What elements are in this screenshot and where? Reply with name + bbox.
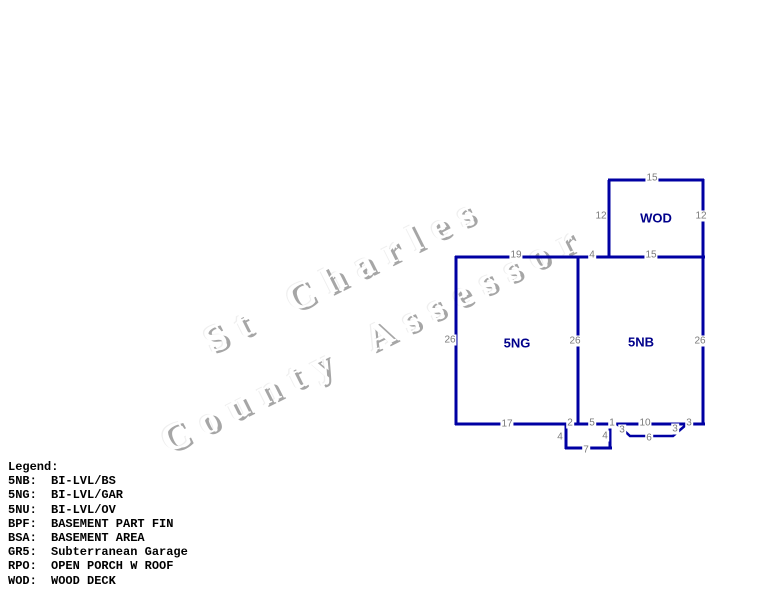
room-label-5ng: 5NG <box>504 336 531 351</box>
dim-wod-right: 12 <box>694 211 707 222</box>
dim-wod-top: 15 <box>645 173 658 184</box>
dim-stoop-bottom-7: 7 <box>582 445 590 456</box>
dim-bottom-17: 17 <box>500 419 513 430</box>
legend-code: 5NG: <box>8 488 51 502</box>
dim-patio-bottom-6: 6 <box>645 433 653 444</box>
legend-code: 5NB: <box>8 474 51 488</box>
dim-top-19: 19 <box>509 250 522 261</box>
legend-desc: WOOD DECK <box>51 574 116 588</box>
legend-code: WOD: <box>8 574 51 588</box>
dim-wod-left: 12 <box>594 211 607 222</box>
room-label-wod: WOD <box>640 211 672 226</box>
legend-desc: BASEMENT AREA <box>51 531 145 545</box>
legend-row: 5NU: BI-LVL/OV <box>8 503 188 517</box>
legend-row: 5NG: BI-LVL/GAR <box>8 488 188 502</box>
dim-mid-26: 26 <box>568 336 581 347</box>
legend-code: 5NU: <box>8 503 51 517</box>
legend-desc: BI-LVL/GAR <box>51 488 123 502</box>
dim-bottom-1: 1 <box>608 418 616 429</box>
legend-code: BPF: <box>8 517 51 531</box>
legend: Legend: 5NB: BI-LVL/BS 5NG: BI-LVL/GAR 5… <box>8 460 188 588</box>
legend-row: 5NB: BI-LVL/BS <box>8 474 188 488</box>
dim-stoop-right-4: 4 <box>601 431 609 442</box>
dim-stoop-left-4: 4 <box>556 432 564 443</box>
legend-desc: OPEN PORCH W ROOF <box>51 559 173 573</box>
dim-patio-left-3: 3 <box>618 425 626 436</box>
dim-right-26: 26 <box>693 336 706 347</box>
legend-row: BPF: BASEMENT PART FIN <box>8 517 188 531</box>
dim-patio-right-3: 3 <box>671 424 679 435</box>
dim-top-4: 4 <box>588 250 596 261</box>
dim-bottom-2: 2 <box>566 418 574 429</box>
dim-bottom-5: 5 <box>588 418 596 429</box>
legend-desc: BI-LVL/OV <box>51 503 116 517</box>
dim-top-15: 15 <box>644 250 657 261</box>
legend-row: BSA: BASEMENT AREA <box>8 531 188 545</box>
legend-row: WOD: WOOD DECK <box>8 574 188 588</box>
dim-left-26: 26 <box>443 335 456 346</box>
dim-bottom-3: 3 <box>685 418 693 429</box>
legend-row: GR5: Subterranean Garage <box>8 545 188 559</box>
legend-desc: Subterranean Garage <box>51 545 188 559</box>
legend-code: GR5: <box>8 545 51 559</box>
legend-desc: BASEMENT PART FIN <box>51 517 173 531</box>
assessor-sketch-page: St Charles County Assessor WOD 5NG 5NB 1… <box>0 0 762 601</box>
legend-desc: BI-LVL/BS <box>51 474 116 488</box>
legend-code: BSA: <box>8 531 51 545</box>
legend-row: RPO: OPEN PORCH W ROOF <box>8 559 188 573</box>
room-label-5nb: 5NB <box>628 335 654 350</box>
legend-code: RPO: <box>8 559 51 573</box>
dim-bottom-10: 10 <box>638 418 651 429</box>
legend-title: Legend: <box>8 460 188 474</box>
